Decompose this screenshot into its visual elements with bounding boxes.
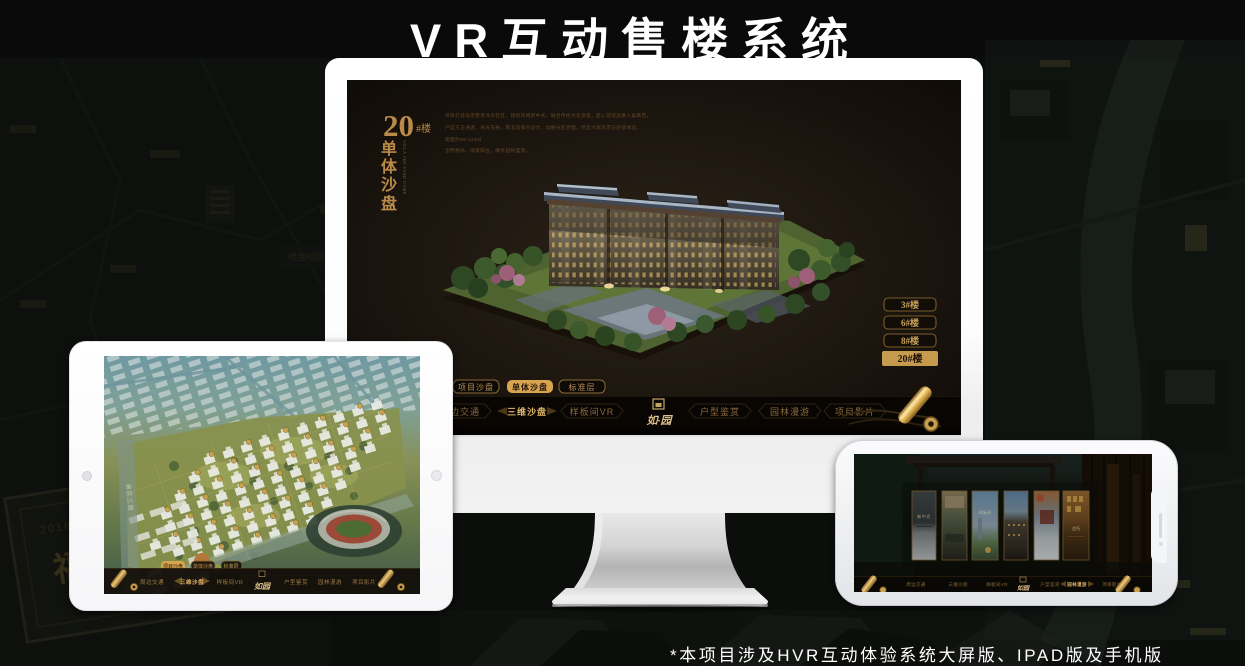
svg-text:户型鉴赏: 户型鉴赏 (1040, 581, 1060, 588)
svg-text:户型鉴赏: 户型鉴赏 (700, 406, 740, 417)
svg-text:如·园: 如·园 (647, 414, 674, 427)
svg-text:20#楼: 20#楼 (898, 352, 923, 365)
svg-text:三维沙盘: 三维沙盘 (948, 581, 968, 588)
svg-text:园林漫游: 园林漫游 (770, 406, 810, 417)
svg-text:20: 20 (383, 108, 414, 143)
svg-text:盘: 盘 (381, 194, 397, 213)
svg-text:项目打造低密墅境洋房社区，建筑风格新中式，融合传统文化意蕴，: 项目打造低密墅境洋房社区，建筑风格新中式，融合传统文化意蕴，匠心营造品质人居典范… (445, 112, 652, 119)
svg-text:#楼: #楼 (416, 122, 431, 135)
svg-text:园林漫游: 园林漫游 (1067, 581, 1087, 588)
svg-text:标准层: 标准层 (569, 382, 596, 392)
svg-text:建面约89-143㎡: 建面约89-143㎡ (445, 136, 482, 143)
svg-text:周边交通: 周边交通 (140, 578, 164, 586)
svg-text:沙: 沙 (381, 176, 397, 194)
svg-text:如园: 如园 (1017, 584, 1030, 592)
svg-text:项目影片: 项目影片 (352, 578, 376, 586)
svg-text:单体沙盘: 单体沙盘 (512, 382, 548, 392)
svg-text:户型鉴赏: 户型鉴赏 (284, 578, 308, 586)
svg-text:单: 单 (381, 139, 397, 158)
svg-text:如园: 如园 (254, 582, 272, 591)
svg-text:样板间VR: 样板间VR (986, 581, 1008, 588)
svg-text:三维沙盘: 三维沙盘 (180, 578, 204, 586)
svg-text:样板间VR: 样板间VR (217, 578, 244, 586)
svg-text:VILLA THE SAND GAME: VILLA THE SAND GAME (402, 140, 407, 195)
svg-text:楼盘地图: 楼盘地图 (288, 251, 324, 262)
svg-text:体: 体 (381, 157, 398, 176)
svg-text:户型方正通透，采光充裕，南北双阳台设计，动静分区合理，尽显大: 户型方正通透，采光充裕，南北双阳台设计，动静分区合理，尽显大家风范与舒适体验。 (445, 124, 641, 131)
svg-text:周边交通: 周边交通 (906, 581, 926, 588)
svg-text:样板间VR: 样板间VR (570, 406, 615, 417)
svg-text:项目沙盘: 项目沙盘 (458, 382, 494, 392)
svg-text:园林漫游: 园林漫游 (318, 578, 342, 586)
svg-text:8#楼: 8#楼 (901, 335, 919, 346)
svg-text:3#楼: 3#楼 (901, 299, 919, 310)
svg-text:三维沙盘: 三维沙盘 (507, 406, 547, 417)
svg-text:全明格局，阔景阳台，瞰享园林盛景。: 全明格局，阔景阳台，瞰享园林盛景。 (445, 147, 531, 154)
svg-text:6#楼: 6#楼 (901, 317, 919, 328)
